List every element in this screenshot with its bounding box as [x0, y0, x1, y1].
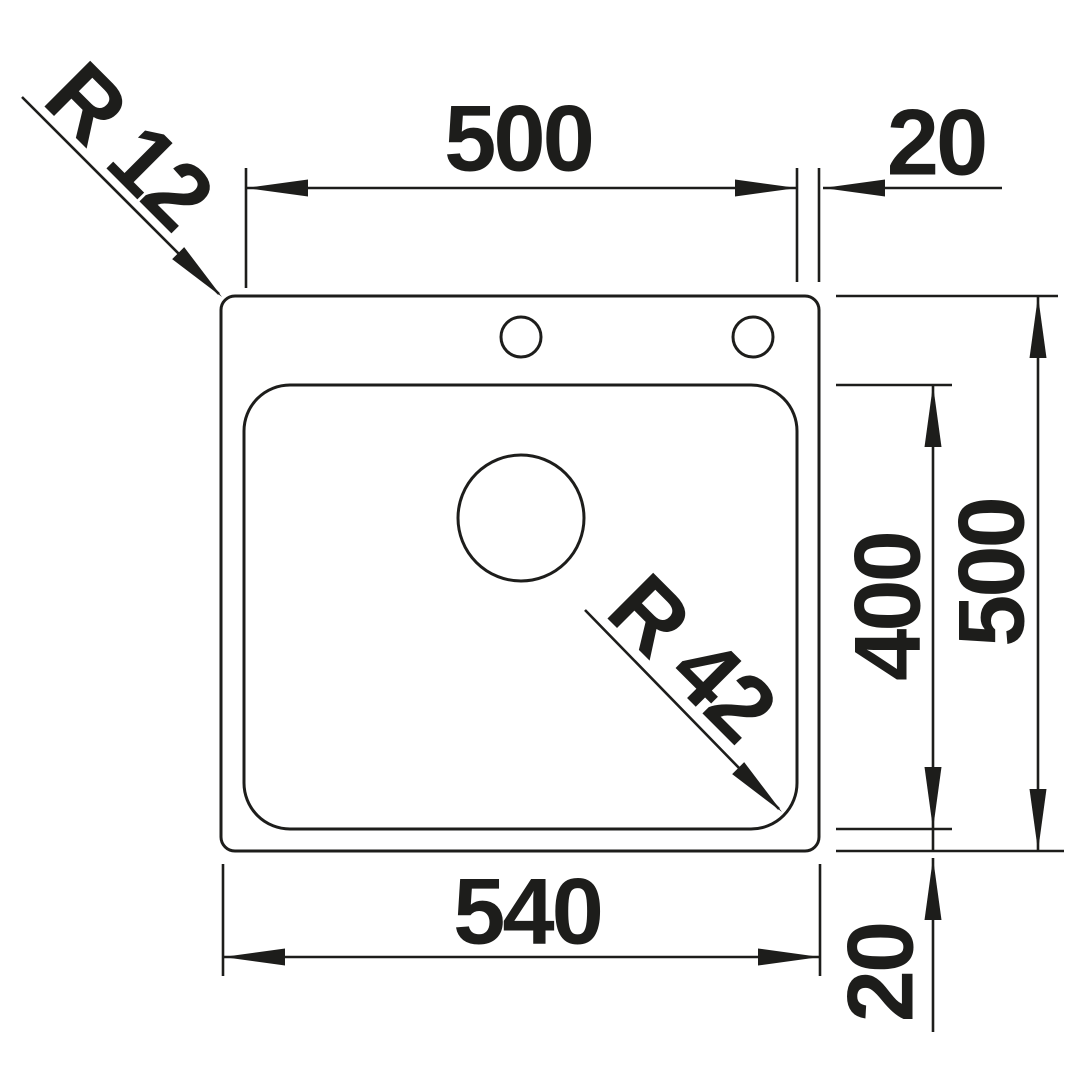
dimension-overall-width: 540 — [223, 859, 820, 966]
arrow-diagonal-icon — [732, 762, 788, 818]
arrow-right-icon — [735, 180, 797, 197]
dim-label-rim-offset-bottom: 20 — [828, 924, 933, 1023]
dimension-overall-depth: 500 — [939, 296, 1047, 851]
arrow-up-icon — [1030, 296, 1047, 358]
dimension-rim-offset-right: 20 — [823, 90, 1002, 197]
dim-label-bowl-corner-radius: R 42 — [589, 554, 795, 760]
arrow-diagonal-icon — [172, 247, 228, 303]
drawing-canvas: 500 20 400 500 540 — [0, 0, 1080, 1080]
dimension-bowl-depth: 400 — [835, 385, 942, 851]
sink-outer-outline — [221, 296, 819, 851]
dim-label-bowl-depth: 400 — [835, 533, 940, 681]
leader-bowl-corner-radius: R 42 — [585, 554, 795, 818]
dimension-rim-offset-bottom: 20 — [828, 858, 942, 1032]
faucet-hole-right — [733, 317, 773, 357]
arrow-down-icon — [925, 767, 942, 829]
arrow-left-icon — [223, 949, 285, 966]
arrow-left-icon — [823, 180, 885, 197]
sink-body — [221, 296, 819, 851]
dim-label-overall-width: 540 — [453, 859, 601, 964]
leader-outer-corner-radius: R 12 — [22, 42, 232, 303]
arrow-up-icon — [925, 385, 942, 447]
arrow-right-icon — [758, 949, 820, 966]
dim-label-bowl-width: 500 — [444, 86, 592, 191]
dim-label-rim-offset-right: 20 — [887, 90, 986, 195]
sink-dimension-diagram: 500 20 400 500 540 — [0, 0, 1080, 1080]
drain-hole — [458, 455, 584, 581]
arrow-up-icon — [925, 858, 942, 920]
dim-label-outer-corner-radius: R 12 — [26, 42, 232, 248]
arrow-down-icon — [1030, 789, 1047, 851]
dim-label-overall-depth: 500 — [939, 499, 1044, 647]
arrow-left-icon — [246, 180, 308, 197]
dimension-bowl-width: 500 — [246, 86, 797, 197]
faucet-hole-center — [501, 317, 541, 357]
